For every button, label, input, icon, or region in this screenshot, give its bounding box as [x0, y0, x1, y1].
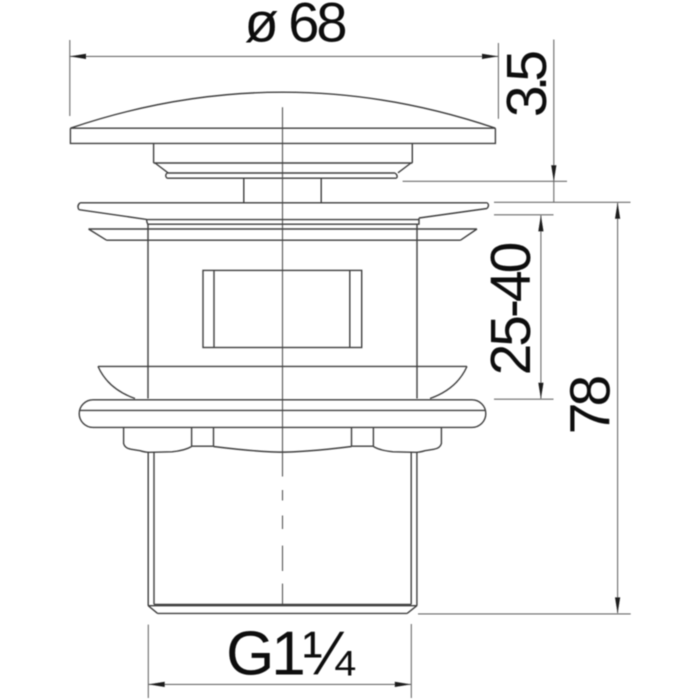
svg-text:25-40: 25-40: [479, 243, 543, 375]
svg-text:ø 68: ø 68: [244, 0, 345, 54]
svg-text:3.5: 3.5: [495, 52, 559, 118]
svg-text:G1¼: G1¼: [226, 620, 356, 689]
svg-text:78: 78: [559, 377, 623, 435]
